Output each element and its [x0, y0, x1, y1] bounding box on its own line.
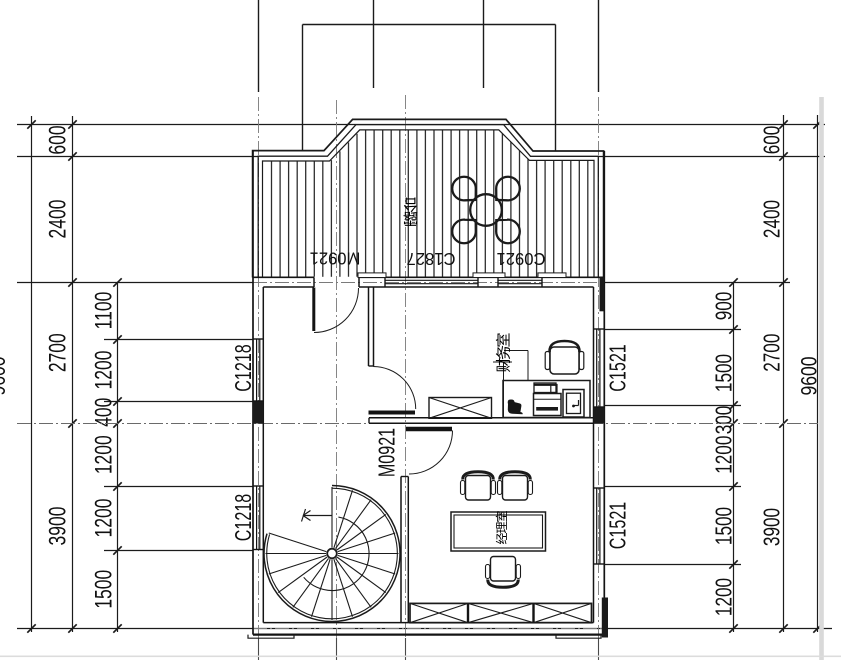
- svg-text:1500: 1500: [91, 570, 117, 609]
- svg-text:900: 900: [711, 292, 737, 321]
- svg-text:1200: 1200: [91, 435, 117, 474]
- svg-text:400: 400: [91, 398, 117, 427]
- svg-text:2700: 2700: [759, 334, 785, 372]
- svg-text:600: 600: [759, 126, 785, 155]
- svg-text:C0921: C0921: [497, 249, 546, 268]
- svg-text:3900: 3900: [759, 508, 785, 546]
- svg-text:9600: 9600: [0, 356, 11, 395]
- svg-text:3900: 3900: [45, 507, 71, 546]
- svg-text:1200: 1200: [91, 351, 117, 390]
- svg-text:1500: 1500: [711, 354, 737, 392]
- svg-text:1200: 1200: [711, 436, 737, 474]
- svg-text:M0921: M0921: [375, 428, 400, 477]
- svg-text:C1218: C1218: [231, 344, 256, 391]
- svg-text:9600: 9600: [798, 356, 822, 395]
- svg-text:C1827: C1827: [407, 249, 456, 268]
- svg-text:C1521: C1521: [606, 344, 631, 391]
- svg-text:C1521: C1521: [606, 502, 631, 549]
- svg-text:1500: 1500: [711, 507, 737, 545]
- svg-text:2700: 2700: [45, 333, 71, 372]
- svg-text:财: 财: [496, 357, 513, 372]
- svg-text:M0921: M0921: [310, 248, 361, 267]
- svg-text:室: 室: [494, 510, 509, 522]
- svg-text:2400: 2400: [45, 200, 71, 239]
- svg-text:2400: 2400: [759, 200, 785, 238]
- svg-text:理: 理: [495, 521, 509, 533]
- svg-text:露: 露: [402, 210, 418, 227]
- svg-text:1200: 1200: [711, 578, 737, 616]
- svg-text:600: 600: [45, 125, 71, 154]
- svg-text:1200: 1200: [91, 499, 117, 538]
- svg-text:1100: 1100: [91, 292, 117, 330]
- svg-text:C1218: C1218: [231, 494, 256, 541]
- svg-text:经: 经: [495, 532, 509, 544]
- svg-text:300: 300: [711, 406, 737, 435]
